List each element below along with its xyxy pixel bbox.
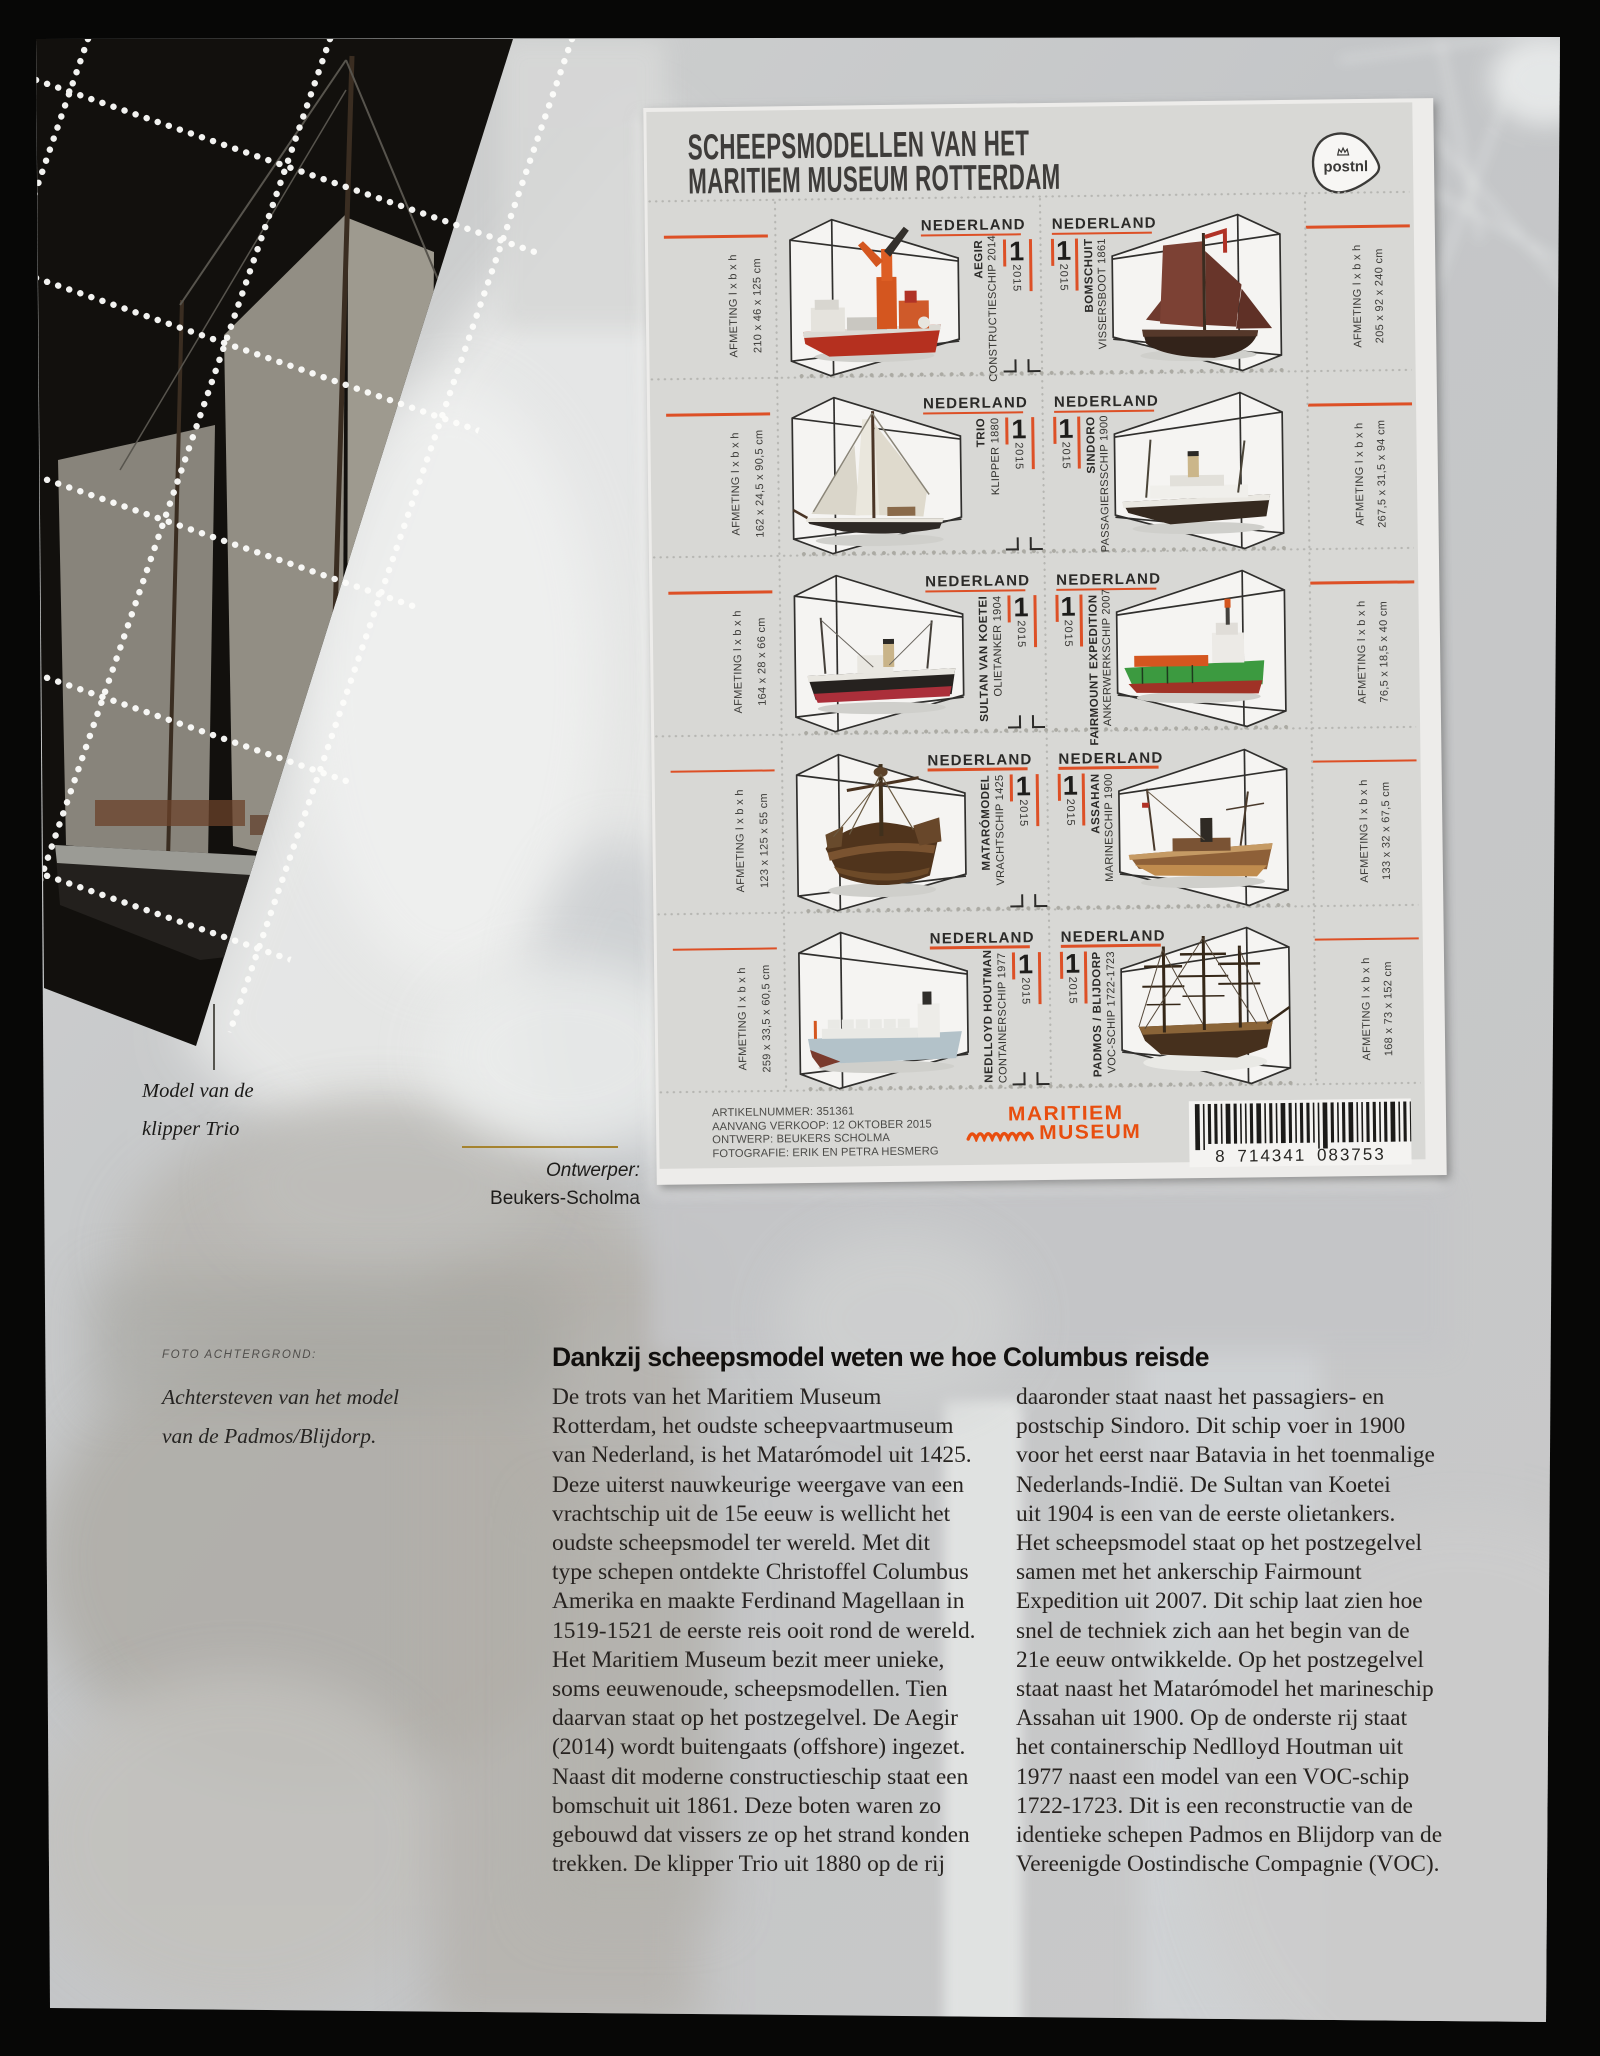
svg-text:postnl: postnl: [1323, 159, 1368, 176]
